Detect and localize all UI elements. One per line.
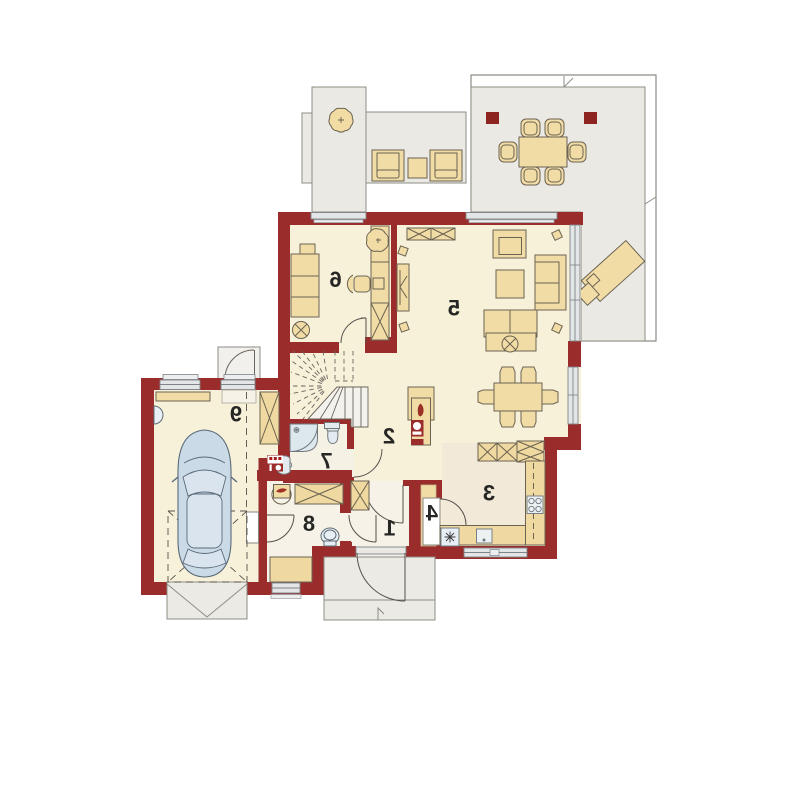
- svg-text:7: 7: [320, 449, 332, 474]
- svg-text:2: 2: [383, 424, 395, 449]
- svg-text:5: 5: [448, 296, 460, 321]
- svg-text:4: 4: [425, 501, 438, 526]
- svg-text:3: 3: [483, 481, 495, 506]
- svg-text:6: 6: [329, 267, 341, 292]
- svg-text:8: 8: [303, 511, 315, 536]
- svg-text:9: 9: [230, 402, 242, 427]
- svg-text:1: 1: [384, 516, 396, 541]
